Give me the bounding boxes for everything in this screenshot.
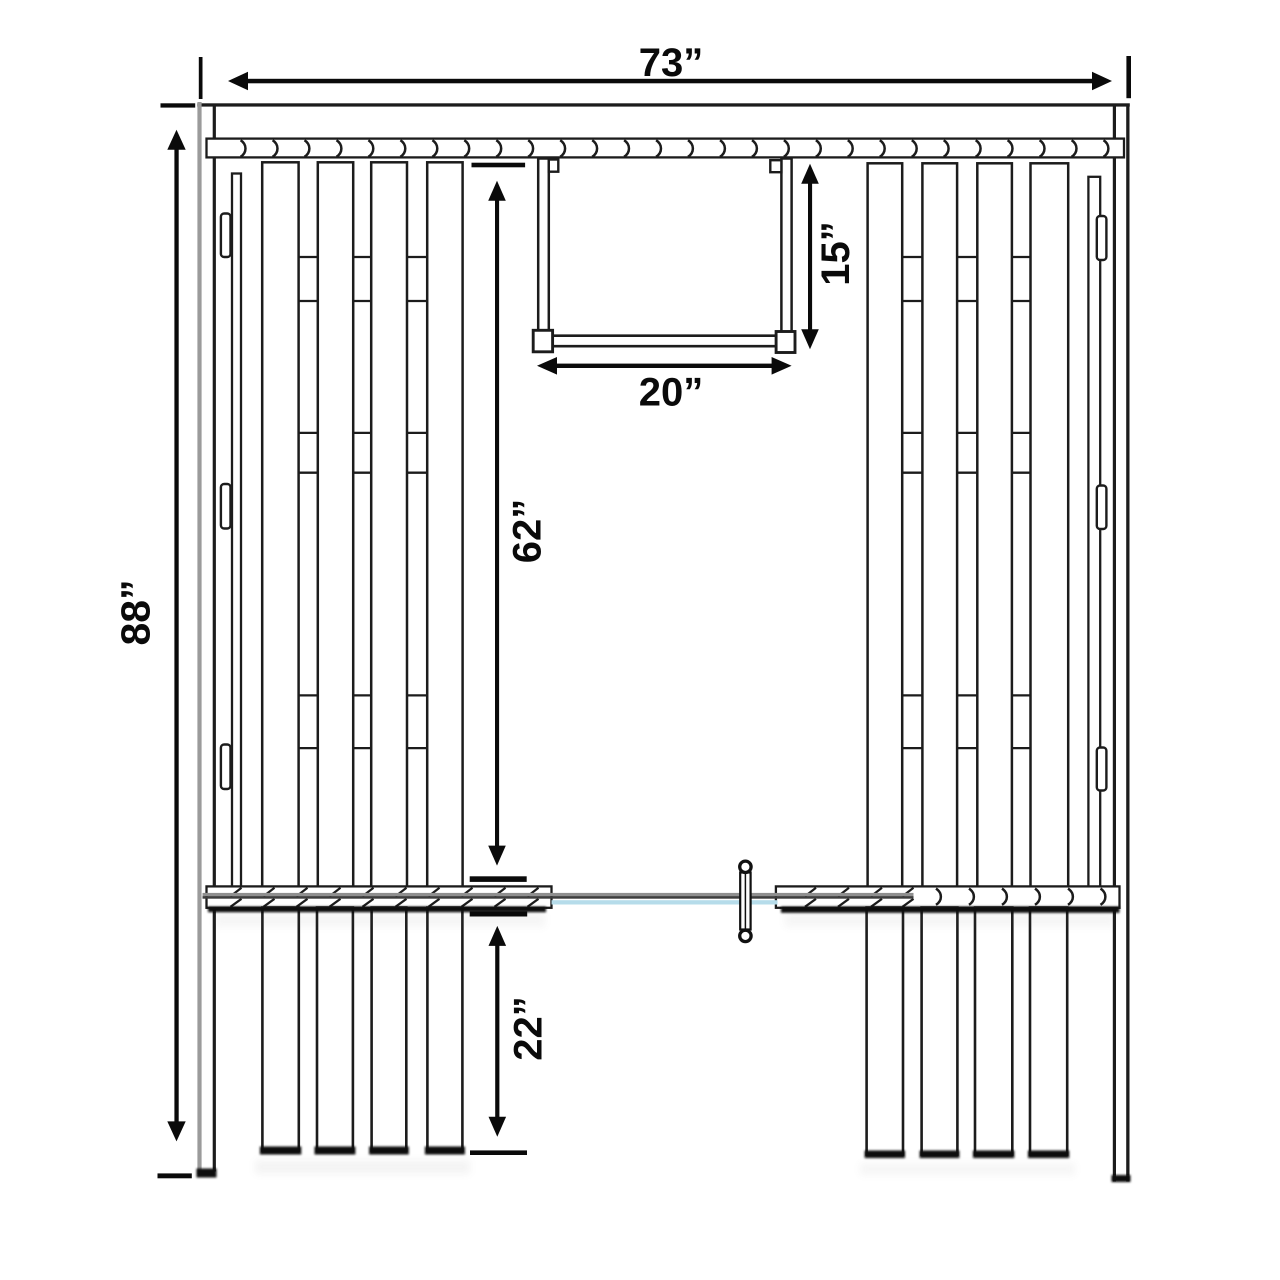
svg-text:15”: 15” — [814, 221, 858, 286]
svg-text:88”: 88” — [113, 579, 159, 645]
svg-text:20”: 20” — [639, 371, 704, 415]
svg-text:62”: 62” — [505, 499, 549, 564]
svg-text:22”: 22” — [506, 996, 550, 1061]
svg-text:73”: 73” — [639, 41, 704, 85]
